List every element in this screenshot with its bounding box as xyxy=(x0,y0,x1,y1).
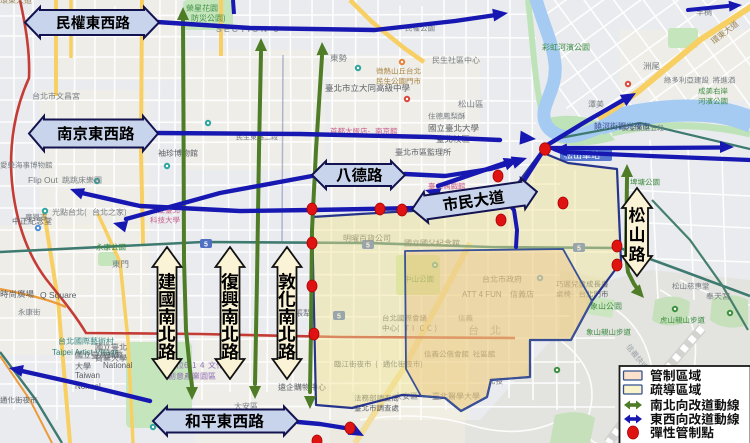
svg-text:Taiwan: Taiwan xyxy=(75,371,100,380)
svg-text:National: National xyxy=(103,361,133,370)
svg-text:Flip Out: Flip Out xyxy=(28,175,58,185)
svg-text:5: 5 xyxy=(204,242,208,249)
svg-text:Q Square: Q Square xyxy=(40,290,77,300)
